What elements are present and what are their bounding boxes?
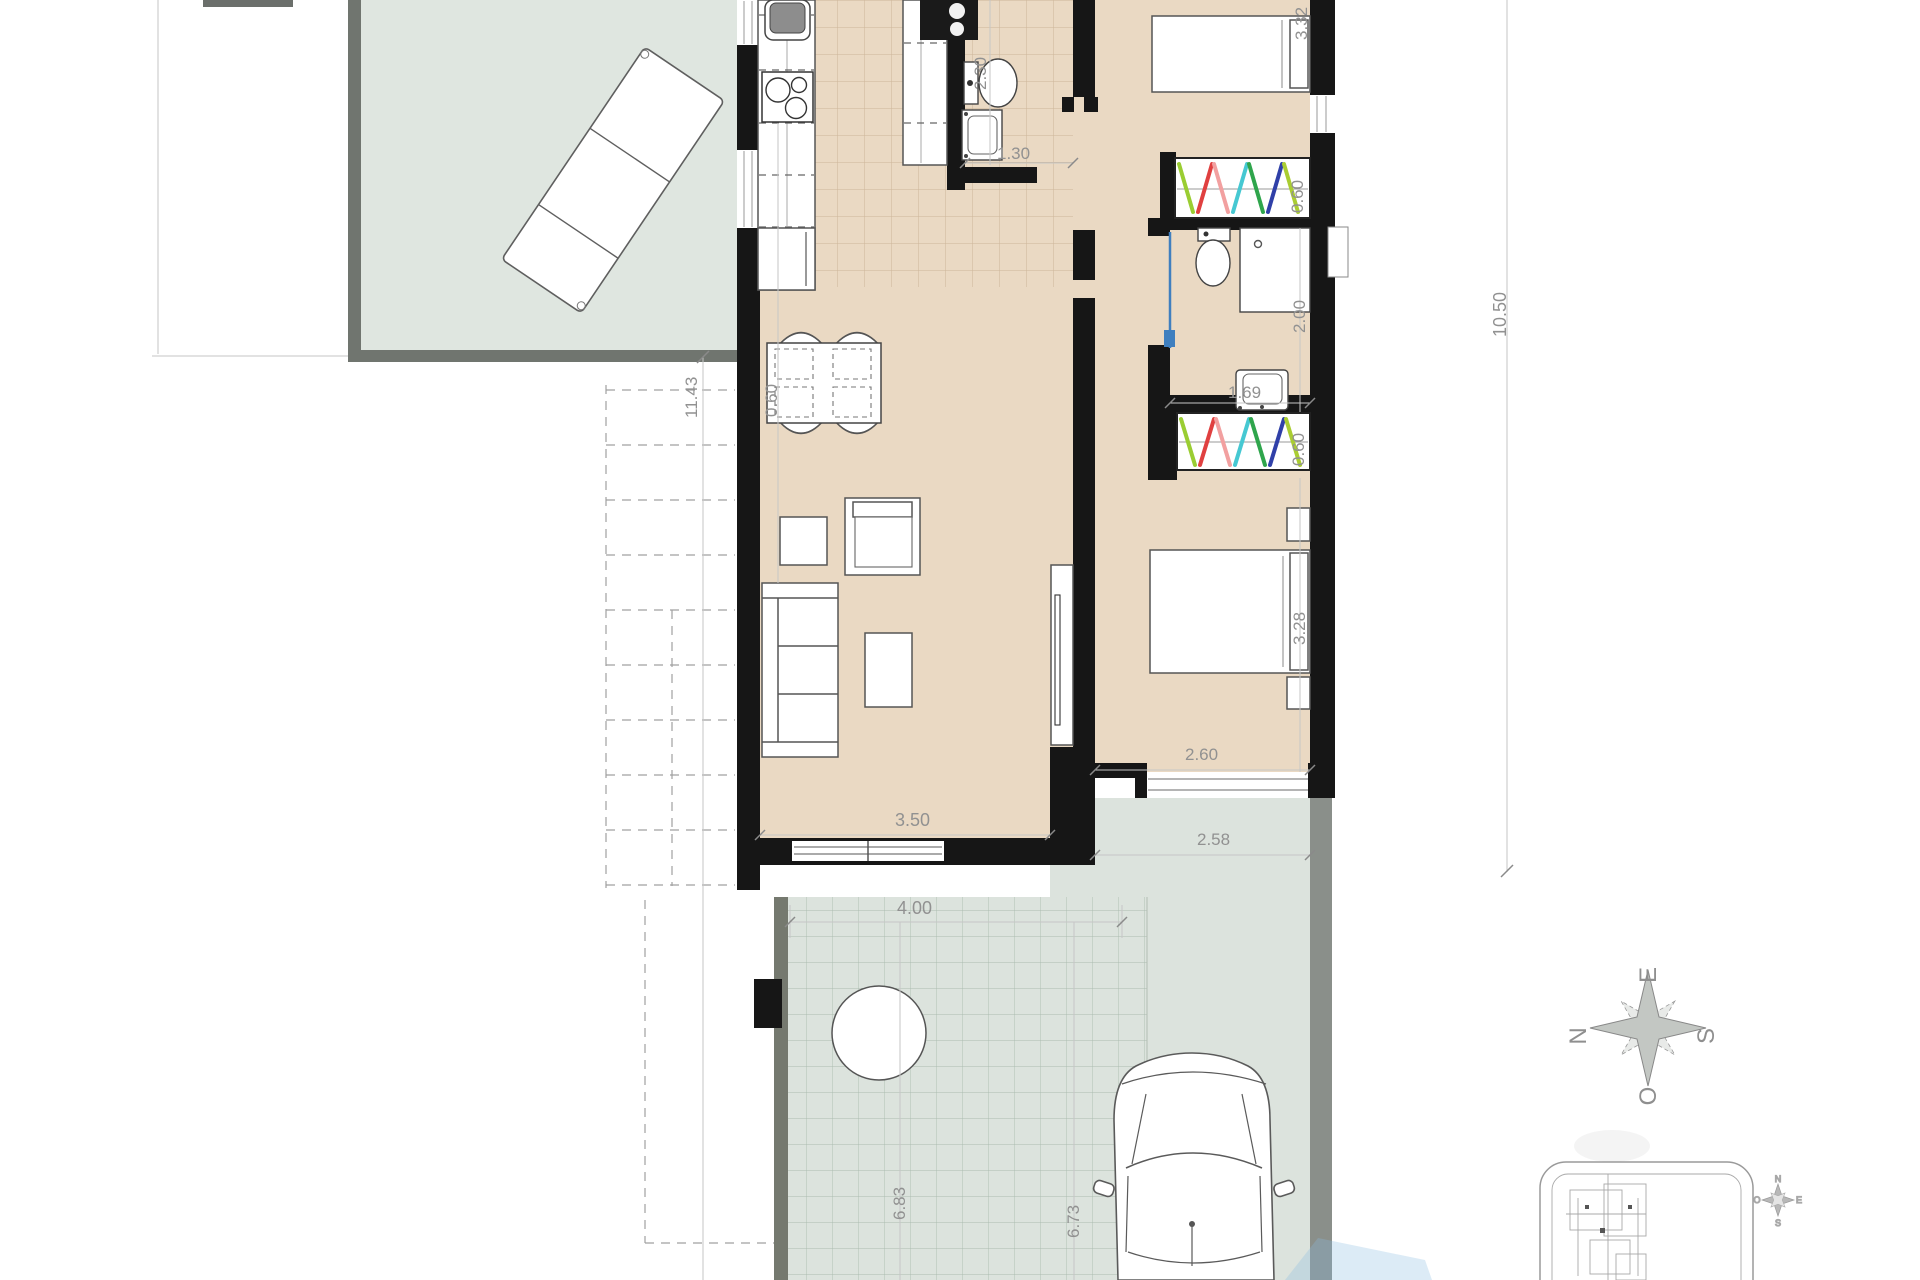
laundry-appliance xyxy=(920,0,978,40)
car xyxy=(1092,1053,1295,1280)
dim-wardrobe1-depth: 0.60 xyxy=(1289,433,1308,466)
patio-tiles xyxy=(788,897,1147,1280)
dim-bedroom2-width: 3.32 xyxy=(1292,7,1311,40)
dim-building-length: 10.50 xyxy=(1490,292,1510,337)
patio-pillar xyxy=(754,979,782,1028)
key-plan: N E O S xyxy=(1540,1130,1802,1280)
dim-wc1-length: 2.30 xyxy=(971,57,990,90)
dim-bath2-width: 1.69 xyxy=(1228,383,1261,402)
fridge xyxy=(758,228,815,290)
dining-table-set xyxy=(767,333,881,434)
window-kitchen-top xyxy=(737,0,760,45)
window-bedroom1 xyxy=(1147,772,1308,798)
wc-sink xyxy=(962,110,1002,160)
sliding-glass-door-living xyxy=(792,841,944,861)
dim-patio-width: 4.00 xyxy=(897,898,932,918)
sofa xyxy=(762,583,838,757)
mini-compass-s: S xyxy=(1775,1218,1781,1228)
compass-star-main xyxy=(1590,970,1706,1086)
dim-terrace-side: 11.43 xyxy=(682,377,701,418)
dim-wardrobe2-depth: 0.60 xyxy=(1288,180,1307,213)
compass-rose: E N S O xyxy=(1565,967,1720,1105)
neighbor-wall-stub xyxy=(203,0,293,7)
dim-patio-length: 6.83 xyxy=(890,1187,909,1220)
dim-driveway-length: 6.73 xyxy=(1064,1205,1083,1238)
compass-label-n: N xyxy=(1565,1027,1592,1044)
compass-label-o: O xyxy=(1635,1087,1662,1106)
mini-compass-o: O xyxy=(1753,1195,1760,1205)
dining-table xyxy=(767,343,881,423)
patio-round-table xyxy=(832,986,926,1080)
dim-wc1-width: 1.30 xyxy=(997,144,1030,163)
armchair xyxy=(845,498,920,575)
kitchen-sink xyxy=(765,0,810,40)
dim-living-width: 3.50 xyxy=(895,810,930,830)
coffee-table xyxy=(865,633,912,707)
dim-terrace-right-width: 2.58 xyxy=(1197,830,1230,849)
dim-bedroom1-length: 3.28 xyxy=(1290,612,1309,645)
bathroom2-toilet xyxy=(1196,228,1230,286)
mini-compass-e: E xyxy=(1796,1195,1802,1205)
dim-bedroom1-width: 2.60 xyxy=(1185,745,1218,764)
mini-compass: N E O S xyxy=(1753,1174,1802,1228)
side-table xyxy=(780,517,827,565)
compass-label-e: E xyxy=(1635,967,1662,983)
kitchen-hob xyxy=(762,72,813,122)
bed-double xyxy=(1150,550,1310,673)
nightstand xyxy=(1287,677,1310,709)
window-kitchen xyxy=(737,150,760,228)
compass-label-s: S xyxy=(1693,1028,1720,1044)
mini-compass-n: N xyxy=(1775,1174,1782,1184)
nightstand xyxy=(1287,508,1310,541)
tv-unit xyxy=(1051,565,1073,745)
dim-bath2-length: 2.00 xyxy=(1290,300,1309,333)
dim-counter-run: 0.60 xyxy=(762,384,781,417)
window-bedroom2 xyxy=(1310,95,1335,133)
bed-single xyxy=(1152,16,1310,92)
boundary-wall-right xyxy=(1310,798,1332,1280)
floor-plan-page: 11.43 0.60 2.30 1.30 3.32 0.60 10.50 2.0… xyxy=(0,0,1920,1280)
patio-side-wall xyxy=(774,897,788,1280)
exterior-door-stub xyxy=(1328,227,1348,277)
floor-plan-drawing: 11.43 0.60 2.30 1.30 3.32 0.60 10.50 2.0… xyxy=(0,0,1920,1280)
